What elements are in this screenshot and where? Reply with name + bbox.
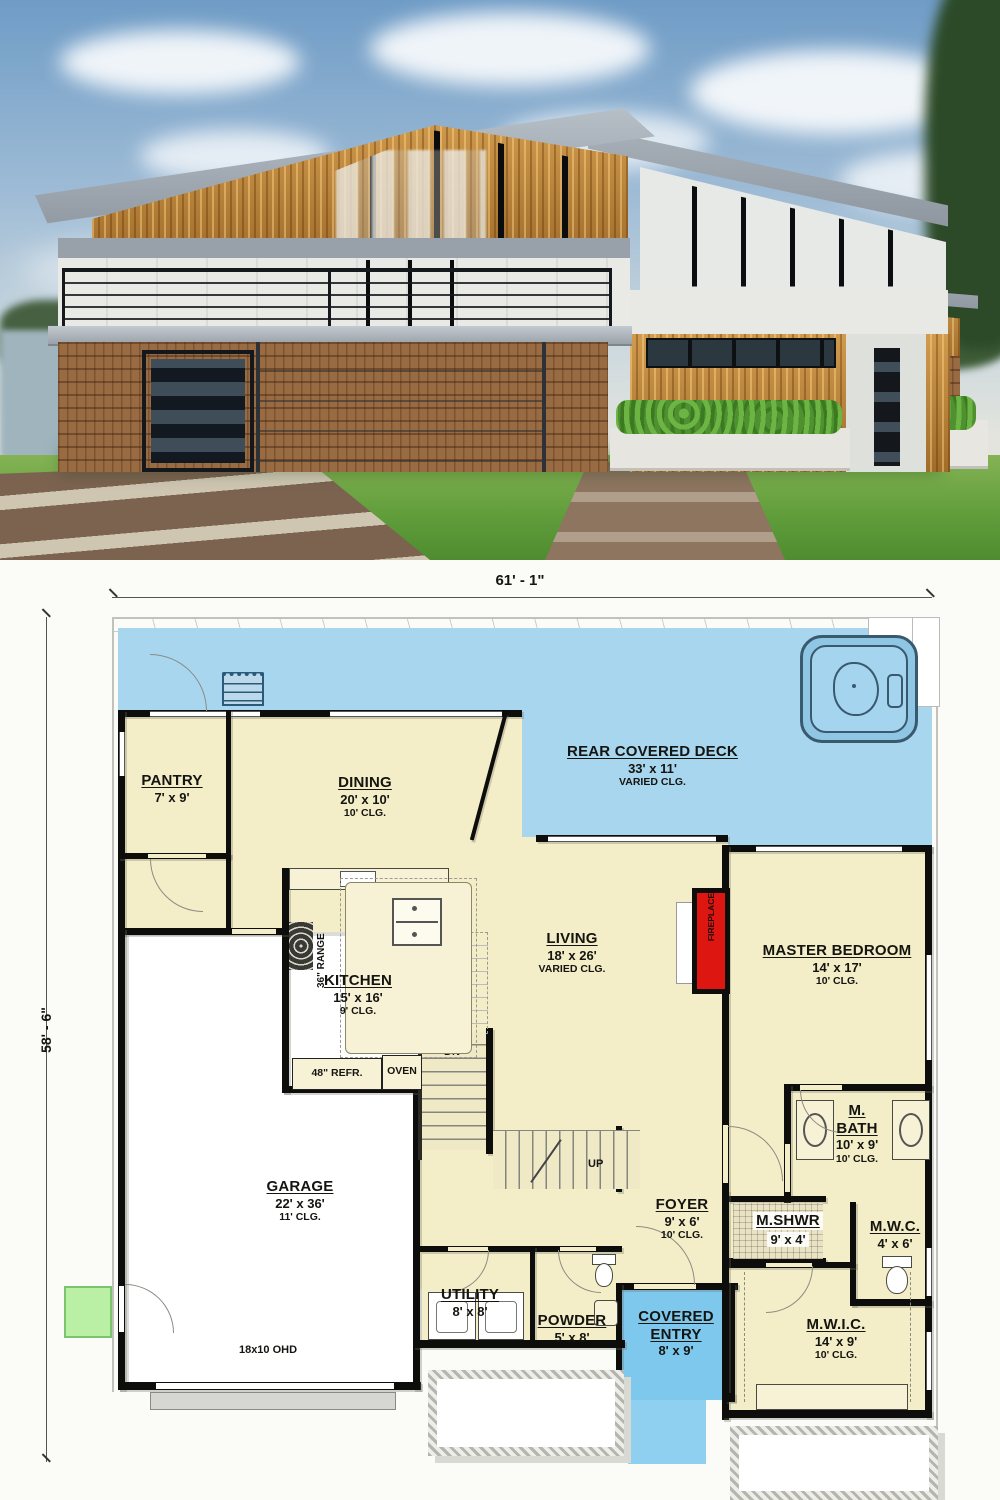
room-name: M.W.I.C. [766,1316,906,1334]
room-name: FOYER [628,1196,736,1214]
room-label-master-shower: M.SHWR 9' x 4' [736,1212,840,1250]
roof-outline [936,617,938,1462]
window-gap [926,955,932,1060]
room-name: LIVING [498,930,646,948]
room-name: REAR COVERED DECK [545,743,760,761]
sink-drain [412,906,417,911]
garage-door-opening [156,1383,394,1389]
up-label: UP [588,1158,603,1170]
fireplace-label: FIREPLACE [697,893,725,941]
refrigerator: 48" REFR. [292,1058,382,1090]
sink-drain [412,932,417,937]
window-gap [119,732,125,776]
room-label-dining: DINING 20' x 10' 10' CLG. [298,774,432,819]
overhead-door [150,1392,396,1410]
room-name: PANTRY [116,772,228,790]
window-gap [926,1248,932,1296]
dimension-tick [926,588,935,597]
range [289,922,313,970]
entry-door [856,342,918,472]
ohd-label: 18x10 OHD [205,1344,331,1356]
wall [850,1299,932,1306]
room-label-utility: UTILITY 8' x 8' [420,1286,520,1319]
sink-basin [899,1113,923,1147]
room-label-powder: POWDER 5' x 8' [526,1312,618,1345]
room-label-covered-entry: COVERED ENTRY 8' x 9' [620,1308,732,1359]
planter-inner [739,1435,929,1491]
room-dims: 7' x 9' [116,790,228,805]
garage-door [256,342,546,472]
room-label-foyer: FOYER 9' x 6' 10' CLG. [628,1196,736,1241]
wall [226,853,231,930]
planter-inner [437,1379,615,1447]
window-gap [330,711,502,717]
closet-bench [756,1384,908,1410]
room-label-master-wic: M.W.I.C. 14' x 9' 10' CLG. [766,1316,906,1361]
room-label-master-wc: M.W.C. 4' x 6' [854,1218,936,1251]
dimension-tick [42,608,51,617]
page: 61' - 1" 58' - 6" [0,0,1000,1500]
equipment-pad [64,1286,112,1338]
roof-outline [112,617,114,1392]
plan-width-dimension: 61' - 1" [430,572,610,589]
room-dims: 14' x 9' [766,1334,906,1349]
room-clg: 10' CLG. [766,1349,906,1361]
fireplace: FIREPLACE [697,893,725,989]
hot-tub [800,635,918,743]
window-gap [756,846,902,852]
hot-tub-step [887,674,903,708]
room-clg: VARIED CLG. [545,776,760,788]
floor-plan: 61' - 1" 58' - 6" [0,560,1000,1500]
railing-post [609,268,612,328]
room-dims: 8' x 9' [620,1343,732,1358]
railing-post [328,268,331,328]
room-dims: 9' x 4' [767,1232,808,1247]
middle-hedge [616,400,842,434]
room-dims: 22' x 36' [228,1196,372,1211]
porch-post [725,1393,735,1402]
room-name: M.W.C. [854,1218,936,1236]
room-clg: 10' CLG. [628,1229,736,1241]
room-dims: 8' x 8' [420,1304,520,1319]
room-dims: 33' x 11' [545,761,760,776]
room-clg: 9' CLG. [296,1005,420,1017]
room-label-master-bath: M. BATH 10' x 9' 10' CLG. [828,1102,886,1165]
room-name: M.SHWR [753,1212,823,1230]
room-name: DINING [298,774,432,792]
wall [728,1196,826,1202]
closet-rod-dashed [744,1272,745,1402]
room-name: UTILITY [420,1286,520,1304]
room-dims: 5' x 8' [526,1330,618,1345]
entry-walkway [628,1400,706,1464]
hot-tub-jet [852,684,856,688]
room-label-pantry: PANTRY 7' x 9' [116,772,228,805]
room-name: COVERED ENTRY [620,1308,732,1343]
room-label-garage: GARAGE 22' x 36' 11' CLG. [228,1178,372,1223]
curtains [336,150,486,252]
room-name: MASTER BEDROOM [762,942,912,960]
room-name: M. BATH [828,1102,886,1137]
plan-height-dimension: 58' - 6" [38,970,54,1090]
room-clg: 10' CLG. [298,807,432,819]
window-gap [926,1332,932,1390]
middle-white-band [630,290,948,336]
cloud [60,30,300,94]
toilet-bowl [886,1266,908,1294]
railing-post [62,268,65,328]
side-planter [730,1426,938,1500]
door-gap [119,1286,124,1332]
island-sink [392,898,442,946]
room-clg: 11' CLG. [228,1211,372,1223]
room-dims: 4' x 6' [854,1236,936,1251]
room-dims: 9' x 6' [628,1214,736,1229]
room-label-living: LIVING 18' x 26' VARIED CLG. [498,930,646,975]
cloud [370,12,650,86]
balcony-railing [62,268,612,332]
room-dims: 20' x 10' [298,792,432,807]
wall [722,1410,932,1418]
room-label-deck: REAR COVERED DECK 33' x 11' VARIED CLG. [545,743,760,788]
hot-tub-seat [833,662,879,716]
room-clg: 10' CLG. [828,1153,886,1165]
room-clg: 10' CLG. [762,975,912,987]
door-gap [148,854,206,858]
sink-divider [396,921,438,923]
oven-label: OVEN [383,1056,421,1087]
top-dimension-line [112,597,932,598]
refr-label: 48" REFR. [293,1059,381,1087]
house-photo [0,0,1000,560]
door-gap [785,1144,790,1192]
closet-rod-dashed [910,1272,911,1402]
wall [282,868,289,1093]
window-gap [150,711,260,717]
middle-planter-wall [610,428,850,471]
room-name: GARAGE [228,1178,372,1196]
door-gap [232,929,276,934]
room-label-kitchen: KITCHEN 15' x 16' 9' CLG. [296,972,420,1017]
stair-wall [486,1028,493,1154]
vanity [892,1100,930,1160]
room-dims: 10' x 9' [828,1137,886,1152]
dimension-tick [109,588,118,597]
room-name: POWDER [526,1312,618,1330]
room-clg: VARIED CLG. [498,963,646,975]
oven: OVEN [382,1055,422,1090]
bbq-grill [222,672,264,706]
room-name: KITCHEN [296,972,420,990]
room-dims: 14' x 17' [762,960,912,975]
transom-window [646,338,836,368]
stairs-up-flight [493,1130,640,1189]
room-label-master-bedroom: MASTER BEDROOM 14' x 17' 10' CLG. [762,942,912,987]
glass-side-door [142,350,254,472]
entry-planter [428,1370,624,1456]
room-dims: 18' x 26' [498,948,646,963]
room-dims: 15' x 16' [296,990,420,1005]
window-gap [548,836,716,842]
